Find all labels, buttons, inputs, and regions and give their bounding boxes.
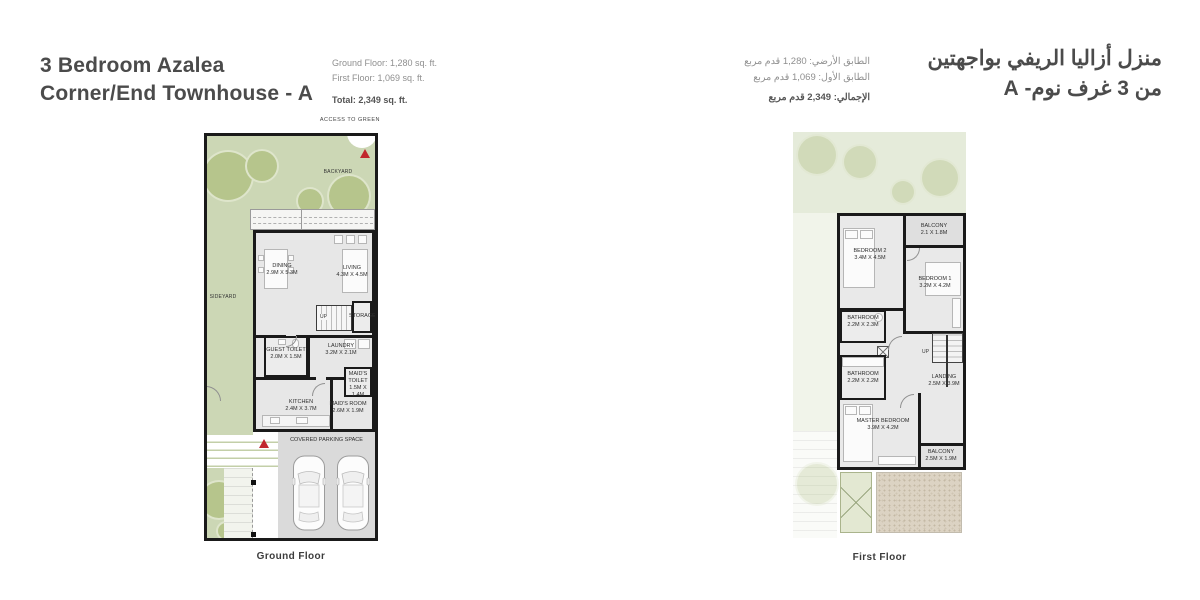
room-label-bedroom1: BEDROOM 1 3.2M X 4.2M [908,276,962,290]
room-dims: 3.2M X 4.2M [908,283,962,290]
pillow [845,230,858,239]
room-dims: 2.1 X 1.8M [906,230,962,237]
wardrobe [878,456,916,465]
room-label-balcony-bottom: BALCONY 2.5M X 1.9M [919,449,963,463]
pillow [860,230,873,239]
access-to-green-label: ACCESS TO GREEN [308,117,380,123]
room-label-storage: STORAGE [349,313,375,320]
room-name: DINING [272,263,291,269]
room-name: MAID'S ROOM [329,401,366,407]
deck-line [253,217,373,218]
room-dims: 3.2M X 2.1M [316,350,366,357]
car-icon [336,454,370,532]
room-label-maids-toilet: MAID'S TOILET 1.5M X 1.4M [344,371,372,399]
room-dims: 2.2M X 2.3M [841,322,885,329]
side-walkway [224,468,253,538]
gate-post [251,480,256,485]
title-ar-line2: من 3 غرف نوم- A [927,74,1162,104]
ground-floor-caption: Ground Floor [204,551,378,562]
room-dims: 2.5M X 3.9M [925,381,963,388]
room-name: BEDROOM 2 [853,248,886,254]
title-en-line1: 3 Bedroom Azalea [40,52,313,80]
pergola-texture [876,472,962,533]
room-name: KITCHEN [289,399,313,405]
room-name: COVERED PARKING SPACE [290,437,363,443]
room-dims: 4.3M X 4.5M [330,272,374,279]
room-label-living: LIVING 4.3M X 4.5M [330,265,374,279]
room-dims: 2.2M X 2.2M [841,378,885,385]
tv-unit [358,235,367,244]
room-name: MAID'S TOILET [348,371,367,384]
room-name: BALCONY [928,449,954,455]
room-name: STORAGE [349,313,376,319]
first-floor-caption: First Floor [793,552,966,563]
first-building: BALCONY 2.1 X 1.8M BEDROOM 2 3.4M X 4.5M… [837,213,966,470]
deck-line [253,223,373,224]
canopy-square [840,472,872,533]
ground-building: DINING 2.9M X 5.3M LIVING 4.3M X 4.5M UP… [253,230,375,432]
area-en-total: Total: 2,349 sq. ft. [332,93,437,108]
bathtub [842,357,884,367]
room-name: GUEST TOILET [266,347,305,353]
tree-icon [796,134,838,176]
first-floor-plan: BALCONY 2.1 X 1.8M BEDROOM 2 3.4M X 4.5M… [793,132,966,538]
room-name: BALCONY [921,223,947,229]
room-name: BATHROOM [847,371,878,377]
area-summary-en: Ground Floor: 1,280 sq. ft. First Floor:… [332,56,437,108]
chair [288,255,294,261]
pillow [859,406,871,415]
room-label-bedroom2: BEDROOM 2 3.4M X 4.5M [840,248,900,262]
room-dims: 3.9M X 4.2M [848,425,918,432]
room-name: LANDING [932,374,956,380]
gate-post [251,532,256,537]
room-label-balcony-top: BALCONY 2.1 X 1.8M [906,223,962,237]
tv-unit [334,235,343,244]
up-label: UP [319,314,328,320]
area-en-ground: Ground Floor: 1,280 sq. ft. [332,56,437,71]
parking-label: COVERED PARKING SPACE [288,437,365,444]
title-en-line2: Corner/End Townhouse - A [40,80,313,108]
tree-icon [890,179,916,205]
door-arc [907,248,920,261]
room-dims: 2.5M X 1.9M [919,456,963,463]
tv-unit [346,235,355,244]
room-dims: 2.9M X 5.3M [260,270,304,277]
stove [296,417,308,424]
wardrobe [952,298,961,328]
room-name: LIVING [343,265,361,271]
sideyard-label: SIDEYARD [207,294,239,300]
room-label-bathroom1: BATHROOM 2.2M X 2.3M [841,315,885,329]
room-dims: 2.6M X 1.9M [327,408,369,415]
wall [256,377,316,380]
backyard-label: BACKYARD [311,169,365,175]
room-name: BEDROOM 1 [918,276,951,282]
room-label-laundry: LAUNDRY 3.2M X 2.1M [316,343,366,357]
title-ar-line1: منزل أزاليا الريفي بواجهتين [927,44,1162,74]
deck-divider [301,210,302,231]
room-name: BATHROOM [847,315,878,321]
room-label-maids-room: MAID'S ROOM 2.6M X 1.9M [327,401,369,415]
room-dims: 1.5M X 1.4M [344,385,372,399]
area-ar-first: الطابق الأول: 1,069 قدم مربع [744,70,870,86]
room-label-guest-toilet: GUEST TOILET 2.0M X 1.5M [265,347,307,361]
door-arc [888,336,902,350]
room-label-bathroom2: BATHROOM 2.2M X 2.2M [841,371,885,385]
pillow [845,406,857,415]
room-dims: 3.4M X 4.5M [840,255,900,262]
kitchen-sink [270,417,280,424]
room-name: MASTER BEDROOM [857,418,910,424]
page-title-en: 3 Bedroom Azalea Corner/End Townhouse - … [40,52,313,109]
brochure-page: 3 Bedroom Azalea Corner/End Townhouse - … [0,0,1200,600]
door-arc [900,394,914,408]
room-name: LAUNDRY [328,343,354,349]
tree-icon [245,149,279,183]
room-label-dining: DINING 2.9M X 5.3M [260,263,304,277]
tree-icon [842,144,878,180]
chair [258,255,264,261]
room-label-landing: LANDING 2.5M X 3.9M [925,374,963,388]
area-ar-ground: الطابق الأرضي: 1,280 قدم مربع [744,54,870,70]
area-en-first: First Floor: 1,069 sq. ft. [332,71,437,86]
tree-icon [795,462,839,506]
up-label: UP [922,349,929,355]
room-label-master-bedroom: MASTER BEDROOM 3.9M X 4.2M [848,418,918,432]
room-label-kitchen: KITCHEN 2.4M X 3.7M [279,399,323,413]
room-dims: 2.4M X 3.7M [279,406,323,413]
area-summary-ar: الطابق الأرضي: 1,280 قدم مربع الطابق الأ… [744,54,870,106]
car-icon [292,454,326,532]
area-ar-total: الإجمالي: 2,349 قدم مربع [744,90,870,106]
ground-floor-plan: BACKYARD SIDEYARD DINING [204,133,378,541]
page-title-ar: منزل أزاليا الريفي بواجهتين من 3 غرف نوم… [927,44,1162,105]
sink [278,339,286,345]
access-marker-icon [360,149,370,158]
tree-icon [920,158,960,198]
door-arc [312,383,325,396]
entrance-marker-icon [259,439,269,448]
patio-deck [250,209,375,230]
covered-parking: COVERED PARKING SPACE [278,432,375,538]
room-dims: 2.0M X 1.5M [265,354,307,361]
